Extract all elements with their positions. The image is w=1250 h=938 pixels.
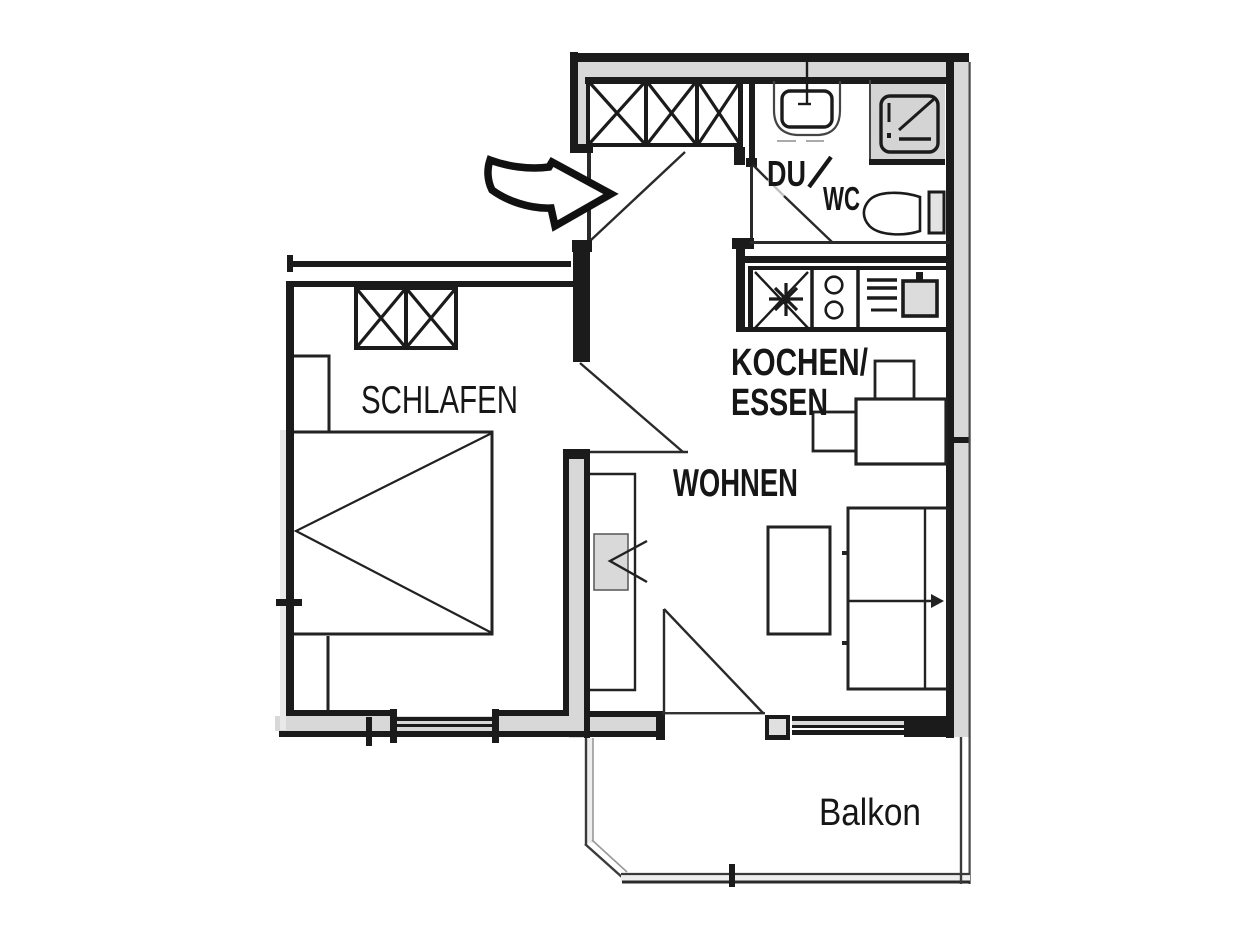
svg-text:KOCHEN/: KOCHEN/ xyxy=(731,342,868,384)
svg-text:WOHNEN: WOHNEN xyxy=(673,462,798,505)
svg-text:DU: DU xyxy=(767,153,806,194)
svg-text:WC: WC xyxy=(823,180,860,217)
svg-text:Balkon: Balkon xyxy=(819,792,921,834)
svg-text:ESSEN: ESSEN xyxy=(731,382,828,424)
svg-text:SCHLAFEN: SCHLAFEN xyxy=(361,379,518,422)
